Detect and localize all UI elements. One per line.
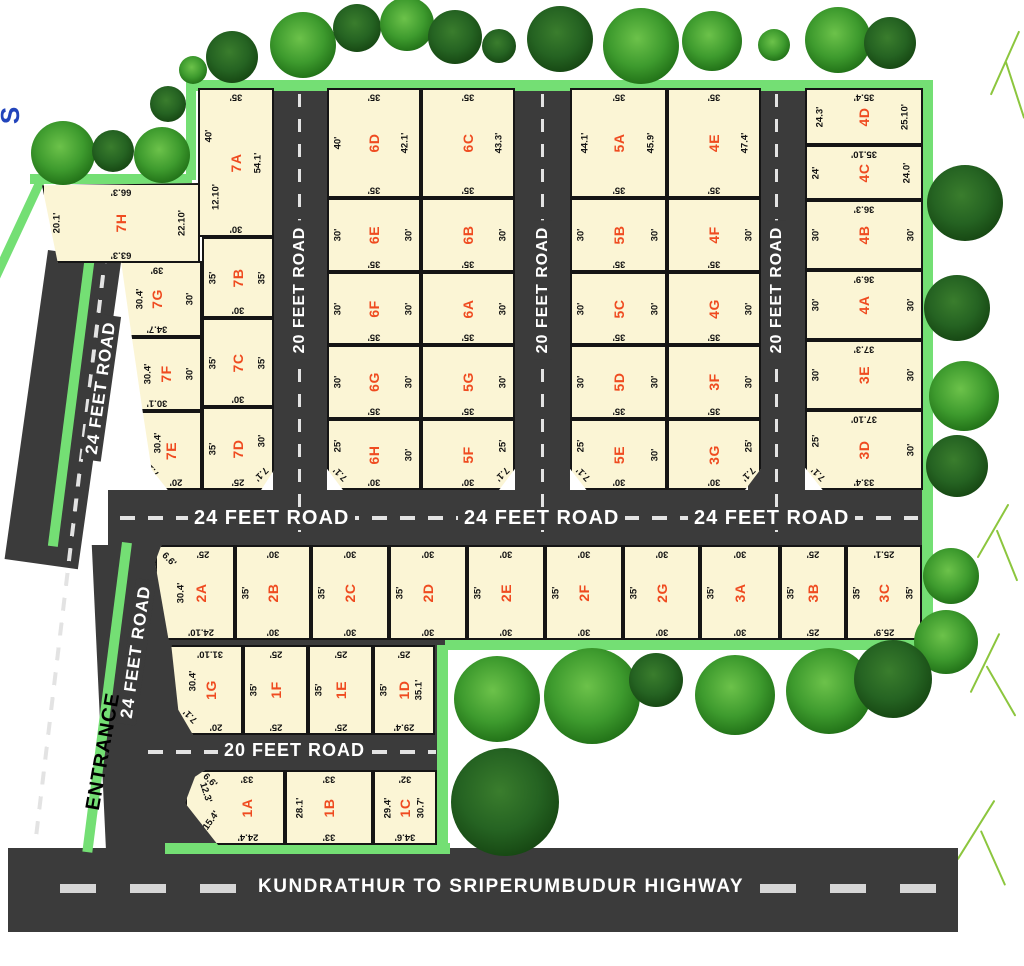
dim-bottom: 35' [462,259,475,269]
tree [929,361,999,431]
dim-top: 36.3' [854,204,875,214]
dim-left: 30.4' [177,582,187,603]
tree [270,12,336,78]
dim-left: 35' [787,586,797,599]
plot-label: 7B [230,268,246,287]
plot-label: 2A [193,583,209,602]
plot-label: 2G [654,583,670,603]
dim-bottom: 25' [269,722,282,732]
tree [206,31,258,83]
plot-5E: 25'30'30'7.1'5E [570,419,667,490]
plot-label: 3A [732,583,748,602]
dim-bottom: 35' [368,259,381,269]
dim-top: 32' [399,774,412,784]
dim-left: 35' [318,586,328,599]
dim-left: 30' [577,302,587,315]
dim-corner: 7.1' [332,464,350,482]
dim-top: 33' [323,774,336,784]
dim-left: 35' [552,586,562,599]
dim-left: 35' [630,586,640,599]
highway-label: KUNDRATHUR TO SRIPERUMBUDUR HIGHWAY [252,876,750,898]
plot-4C: 35.10'24'24.0'4C [805,145,923,200]
dim-right: 35' [258,271,268,284]
dim-right: 30' [405,302,415,315]
dim-right: 47.4' [741,133,751,154]
plot-1B: 33'28.1'33'1B [285,770,373,845]
plot-label: 1B [321,798,337,817]
plot-6E: 30'30'35'6E [327,198,421,272]
dim-bottom: 35' [612,259,625,269]
dim-left: 35' [707,586,717,599]
dim-bottom: 34.7' [147,324,168,334]
dim-bottom: 25' [334,722,347,732]
plot-label: 3F [706,373,722,390]
plot-label: 4E [706,134,722,152]
plot-2G: 30'35'30'2G [623,545,700,640]
dim-top: 35' [612,92,625,102]
dim-left: 30' [577,229,587,242]
plot-2C: 30'35'30'2C [311,545,389,640]
plot-2B: 30'35'30'2B [235,545,311,640]
dim-right: 54.1' [254,152,264,173]
plot-2F: 30'35'30'2F [545,545,623,640]
dim-bottom: 30' [230,224,243,234]
plot-label: 6G [366,372,382,392]
dim-right: 30' [907,229,917,242]
dim-right: 30' [745,302,755,315]
dim-left: 35' [209,271,219,284]
dim-right: 30' [499,376,509,389]
plot-label: 7F [158,365,174,382]
plot-4B: 36.3'30'30'4B [805,200,923,270]
dim-bottom: 35' [462,332,475,342]
dim-left: 35' [209,442,219,455]
dim-bottom: 30' [708,477,721,487]
plot-3D: 37.10'25'30'33.4'7.1'3D [805,410,923,490]
plot-7E: 30.4'20'7.1'7E [112,411,202,490]
dim-corner: 7.1' [810,464,828,482]
dim-top: 66.3' [111,187,132,197]
tree [924,275,990,341]
dim-right: 25.10' [900,103,910,129]
dim-bottom: 30' [344,627,357,637]
plot-label: 3B [805,583,821,602]
tree [864,17,916,69]
dim-right: 30' [499,229,509,242]
dim-top: 25' [196,549,209,559]
dim-right: 43.3' [495,133,505,154]
tree [758,29,790,61]
dim-top: 35.4' [854,92,875,102]
dim-right: 35.1' [415,680,425,701]
dim-bottom: 35' [368,406,381,416]
plot-5D: 30'30'35'5D [570,345,667,419]
dim-top: 33' [240,774,253,784]
tree [31,121,95,185]
plot-6C: 35'43.3'35'6C [421,88,515,198]
dim-top: 36.9' [854,274,875,284]
dim-left: 30' [812,229,822,242]
tree [923,548,979,604]
plot-label: 7G [149,289,165,309]
dim-left: 35' [474,586,484,599]
plot-4E: 35'47.4'35'4E [667,88,761,198]
plot-label: 6E [366,226,382,244]
dim-right: 30' [258,434,268,447]
compass-south-label: S [0,107,26,124]
dim-left: 35' [396,586,406,599]
plot-label: 1C [397,798,413,817]
tree [927,165,1003,241]
dim-bottom: 30' [232,394,245,404]
tree [150,86,186,122]
dim-bottom: 30' [462,477,475,487]
dim-top: 37.10' [851,414,877,424]
plot-6A: 30'35'6A [421,272,515,345]
plot-label: 6F [366,300,382,317]
dim-bottom: 35' [708,185,721,195]
dim-bottom: 30' [500,627,513,637]
dim-bottom: 30.1' [147,398,168,408]
dim-bottom: 30' [578,627,591,637]
road-label-vertical-2: 20 FEET ROAD [534,221,552,360]
plot-3B: 25'35'25'3B [780,545,846,640]
dim-top: 30' [422,549,435,559]
dim-right: 30' [499,302,509,315]
tree [333,4,381,52]
plot-label: 7H [113,214,129,233]
plot-label: 2E [498,583,514,601]
tree [682,11,742,71]
dim-left: 30' [334,376,344,389]
dim-top: 37.3' [854,344,875,354]
plot-5F: 25'30'7.1'5F [421,419,515,490]
tree [603,8,679,84]
plot-7G: 39'30.4'30'34.7'7G [112,261,202,337]
dim-top: 30' [655,549,668,559]
plot-2D: 30'35'30'2D [389,545,467,640]
plot-label: 4G [706,299,722,319]
dim-left: 35' [242,586,252,599]
dim-bottom: 35' [708,332,721,342]
plot-5G: 30'35'5G [421,345,515,419]
dim-top: 30' [500,549,513,559]
grass-blade [986,665,1017,716]
dim-bottom: 25' [232,477,245,487]
dim-right: 30' [651,376,661,389]
plot-4G: 30'35'4G [667,272,761,345]
dim-left: 35' [315,684,325,697]
plot-label: 1A [239,798,255,817]
plot-5A: 35'44.1'45.9'35'5A [570,88,667,198]
dim-top: 35' [708,92,721,102]
road-label-20ft: 20 FEET ROAD [218,740,371,761]
tree [527,6,593,72]
plot-label: 6A [460,299,476,318]
dim-bottom: 35' [368,332,381,342]
dim-left: 29.4' [384,797,394,818]
dim-right: 30' [907,299,917,312]
dim-left: 30.4' [189,671,199,692]
plot-7H: 66.3'20.1'22.10'63.3'7H [42,183,200,263]
dim-right: 42.1' [401,133,411,154]
plot-6H: 25'30'30'7.1'6H [327,419,421,490]
plot-1D: 25'35'35.1'29.4'1D [373,645,435,735]
dim-right: 30' [745,376,755,389]
plot-1F: 25'35'25'1F [243,645,308,735]
dim-left: 30.4' [154,433,164,454]
tree [926,435,988,497]
plot-label: 4C [856,163,872,182]
dim-right: 30' [907,369,917,382]
plot-label: 5G [460,372,476,392]
plot-7D: 35'30'25'7.1'7D [202,407,274,490]
road-label-vertical-3: 20 FEET ROAD [768,221,786,360]
plot-label: 5F [460,446,476,463]
plot-label: 4B [856,226,872,245]
plot-label: 3G [706,445,722,465]
tree [380,0,434,51]
dim-bottom: 33.4' [854,477,875,487]
dim-bottom: 34.6' [395,832,416,842]
road-label-middle-3: 24 FEET ROAD [688,507,855,530]
plot-label: 5C [611,299,627,318]
dim-top: 25' [807,549,820,559]
tree [805,7,871,73]
grass-blade [1005,61,1024,119]
plot-4A: 36.9'30'30'4A [805,270,923,340]
dim-corner: 7.1' [575,464,593,482]
plot-label: 1E [333,681,349,699]
dim-right: 30' [186,293,196,306]
tree [854,640,932,718]
dim-right: 30' [405,229,415,242]
dim-corner: 7.1' [492,464,510,482]
plot-label: 5B [611,226,627,245]
plot-label: 2B [265,583,281,602]
plot-label: 1F [268,681,284,698]
grass-blade [980,830,1006,886]
dim-top: 39' [151,265,164,275]
plot-label: 2D [420,583,436,602]
dim-bottom: 35' [368,185,381,195]
dim-left: 30' [334,229,344,242]
dim-right: 30' [651,302,661,315]
dim-corner: 6.6' [160,551,178,569]
dim-right: 22.10' [177,210,187,236]
road-label-middle-2: 24 FEET ROAD [458,507,625,530]
dim-bottom: 30' [655,627,668,637]
plot-layout-map: S ENTRANCE 24 FEET ROAD 24 FEET ROAD 20 … [0,0,1024,966]
plot-label: 5A [611,134,627,153]
plot-label: 2F [576,584,592,601]
plot-label: 6B [460,226,476,245]
dim-top: 30' [734,549,747,559]
dim-top: 30' [578,549,591,559]
dim-left: 30' [812,299,822,312]
plot-label: 1G [203,680,219,700]
plot-label: 3D [856,441,872,460]
dim-right: 30' [651,448,661,461]
dim-bottom: 35' [612,406,625,416]
dim-right: 35' [906,586,916,599]
dim-bottom: 35' [708,406,721,416]
dim-bottom: 30' [422,627,435,637]
dim-left: 35' [250,684,260,697]
dim-corner: 7.1' [251,464,269,482]
plot-7C: 35'35'30'7C [202,318,274,407]
dim-right: 25' [499,440,509,453]
dim-left: 30' [812,369,822,382]
plot-4D: 35.4'24.3'25.10'4D [805,88,923,145]
plot-7A: 35'40'12.10'54.1'30'7A [198,88,274,237]
plot-3F: 30'35'3F [667,345,761,419]
plot-label: 7C [230,353,246,372]
dim-left: 44.1' [581,133,591,154]
dim-bottom: 30' [734,627,747,637]
dim-right: 25' [745,440,755,453]
plot-6F: 30'30'35'6F [327,272,421,345]
dim-bottom: 63.3' [111,250,132,260]
dim-left: 40' [205,130,215,143]
dim-right: 45.9' [647,133,657,154]
plot-3A: 30'35'30'3A [700,545,780,640]
dim-top: 25' [269,649,282,659]
dim-top: 31.10' [197,649,223,659]
plot-5C: 30'30'35'5C [570,272,667,345]
dim-bottom: 20' [209,722,222,732]
plot-5B: 30'30'35'5B [570,198,667,272]
dim-left: 28.1' [296,797,306,818]
plot-label: 2C [342,583,358,602]
grass-blade [996,530,1018,582]
plot-1E: 25'35'25'1E [308,645,373,735]
dim-right: 30' [745,229,755,242]
tree [451,748,559,856]
tree [92,130,134,172]
dim-left: 30.4' [144,364,154,385]
dim-bottom: 30' [612,477,625,487]
tree [134,127,190,183]
dim-left: 30.4' [136,289,146,310]
boundary-7H-slant [0,180,44,297]
dim-right: 24.0' [903,162,913,183]
dim-top: 35' [462,92,475,102]
dim-bottom: 25.9' [874,627,895,637]
dim-left: 20.1' [53,213,63,234]
dim-right: 30' [405,448,415,461]
plot-2E: 30'35'30'2E [467,545,545,640]
plot-7F: 30.4'30'30.1'7F [112,337,202,411]
plot-label: 5D [611,373,627,392]
dim-left: 35' [209,356,219,369]
plot-3C: 25.1'35'35'25.9'3C [846,545,922,640]
dim-bottom: 24.4' [238,832,259,842]
dim-right: 30' [186,368,196,381]
dim-left: 35' [853,586,863,599]
dim-bottom: 30' [368,477,381,487]
plot-6D: 35'40'42.1'35'6D [327,88,421,198]
plot-2A: 25'6.6'30.4'24.10'2A [155,545,235,640]
plot-label: 5E [611,445,627,463]
plot-label: 4A [856,296,872,315]
tree [544,648,640,744]
dim-bottom: 35' [462,406,475,416]
dim-top: 30' [267,549,280,559]
dim-right: 30' [405,376,415,389]
dim-top: 25' [398,649,411,659]
dim-top: 30' [344,549,357,559]
tree [179,56,207,84]
boundary-inner-right [437,645,448,854]
dim-right: 30' [907,444,917,457]
dim-bottom: 30' [232,305,245,315]
tree [482,29,516,63]
plot-3G: 25'30'7.1'3G [667,419,761,490]
dim-bottom: 30' [267,627,280,637]
dim-top: 25.1' [874,549,895,559]
dim-right: 30.7' [417,797,427,818]
plot-label: 3C [876,583,892,602]
plot-label: 7E [163,441,179,459]
tree [454,656,540,742]
dim-top: 35' [368,92,381,102]
plot-4F: 30'35'4F [667,198,761,272]
plot-label: 7D [230,439,246,458]
dim-right: 30' [651,229,661,242]
tree [428,10,482,64]
plot-label: 7A [228,153,244,172]
plot-3E: 37.3'30'30'3E [805,340,923,410]
plot-label: 6C [460,134,476,153]
plot-1C: 32'29.4'30.7'34.6'1C [373,770,437,845]
dim-bottom: 24.10' [188,627,214,637]
dim-corner: 7.1' [144,460,162,478]
plot-label: 4D [856,107,872,126]
dim-bottom: 25' [807,627,820,637]
dim-bottom: 35' [612,185,625,195]
dim-left: 25' [577,440,587,453]
dim-left: 24' [812,166,822,179]
road-label-middle-1: 24 FEET ROAD [188,507,355,530]
plot-label: 3E [856,366,872,384]
tree [629,653,683,707]
plot-6G: 30'30'35'6G [327,345,421,419]
plot-label: 6H [366,445,382,464]
dim-top: 35.10' [851,149,877,159]
dim-bottom: 35' [708,259,721,269]
dim-left: 24.3' [816,106,826,127]
plot-7B: 35'35'30'7B [202,237,274,318]
road-label-vertical-1: 20 FEET ROAD [291,221,309,360]
tree [695,655,775,735]
plot-label: 4F [706,226,722,243]
dim-bottom: 35' [462,185,475,195]
dim-left-2: 12.10' [211,184,221,210]
dim-left: 25' [334,440,344,453]
dim-bottom: 20' [169,477,182,487]
dim-top: 25' [334,649,347,659]
dim-bottom: 29.4' [394,722,415,732]
plot-label: 1D [396,681,412,700]
dim-right: 35' [258,356,268,369]
dim-left: 30' [334,302,344,315]
dim-left: 30' [577,376,587,389]
dim-bottom: 35' [612,332,625,342]
plot-label: 6D [366,134,382,153]
dim-left: 40' [334,137,344,150]
dim-left: 35' [380,684,390,697]
